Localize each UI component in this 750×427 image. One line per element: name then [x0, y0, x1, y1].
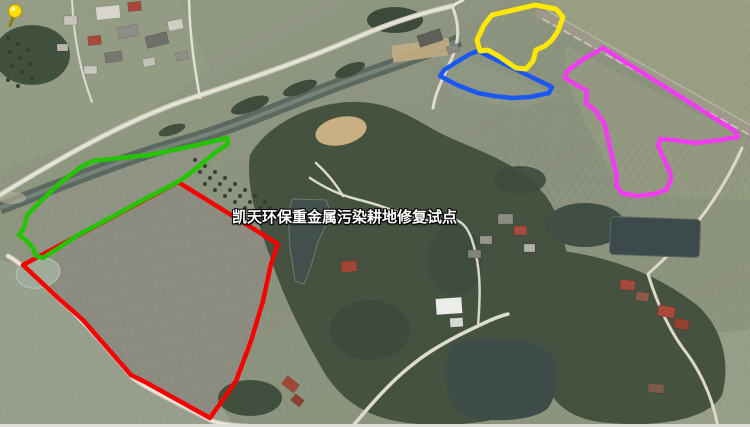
- yellow-plot-outline[interactable]: [477, 5, 563, 69]
- satellite-map[interactable]: 凯天环保重金属污染耕地修复试点: [0, 0, 750, 427]
- placemark-label[interactable]: 凯天环保重金属污染耕地修复试点: [232, 209, 457, 226]
- magenta-plot-outline[interactable]: [565, 48, 738, 196]
- pushpin-icon[interactable]: [0, 0, 32, 32]
- pushpin-head: [9, 5, 22, 18]
- pushpin-highlight: [11, 7, 15, 11]
- green-plot-outline[interactable]: [19, 138, 228, 258]
